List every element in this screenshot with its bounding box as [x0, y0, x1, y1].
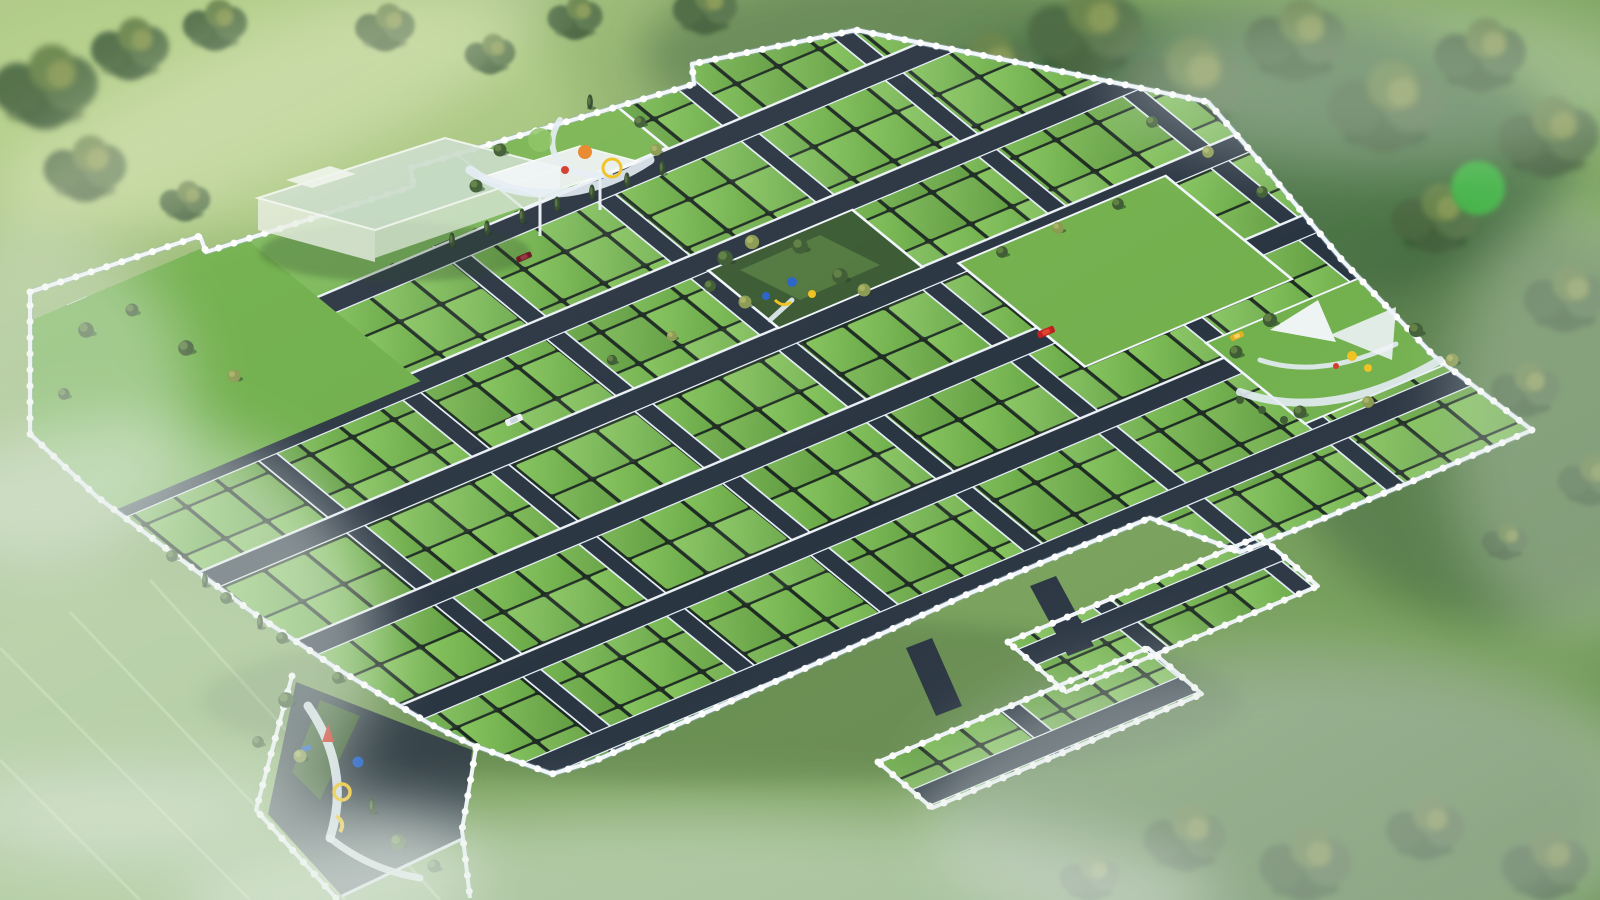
- bright-green-bush: [1451, 161, 1505, 215]
- play-item-yellow: [808, 290, 816, 298]
- play-item-yellow: [1364, 364, 1372, 372]
- play-dome-blue: [353, 757, 364, 768]
- play-item-yellow: [1347, 351, 1357, 361]
- play-slide-blue: [787, 277, 797, 287]
- garden-mound: [528, 128, 552, 152]
- play-item-red: [1333, 363, 1339, 369]
- play-item-blue: [762, 292, 770, 300]
- play-item-red: [561, 166, 569, 174]
- aerial-render-stage: [0, 0, 1600, 900]
- play-dome-orange: [578, 145, 592, 159]
- plotted-development-render: [0, 0, 1600, 900]
